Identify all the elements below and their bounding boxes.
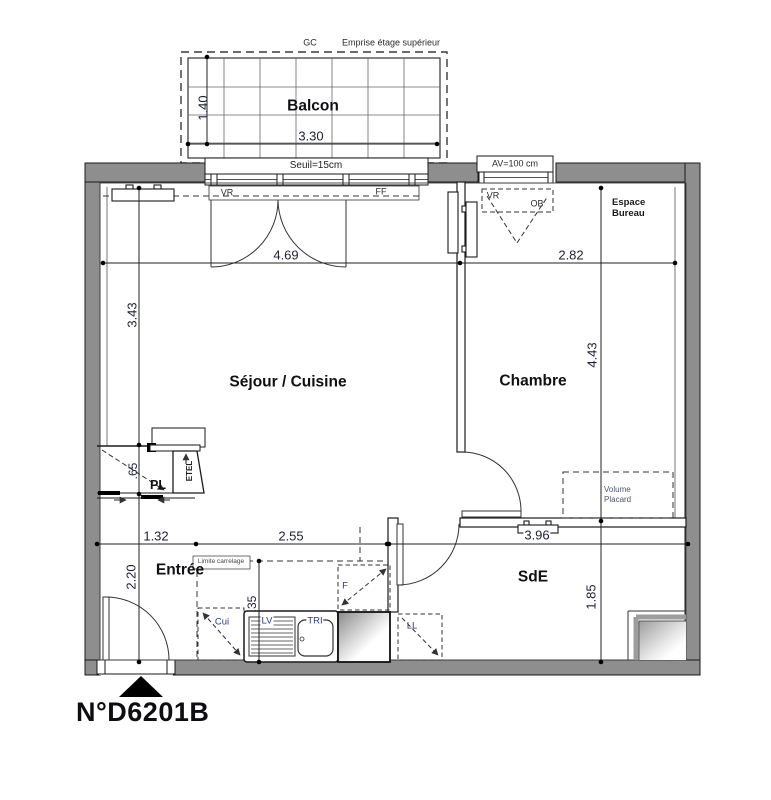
dim-sde-width: 3.96: [523, 529, 550, 542]
etel-label: ETEL: [186, 461, 194, 481]
chambre-shutter-label: VR: [487, 192, 500, 201]
dim-entree-depth: 2.20: [125, 564, 138, 589]
volume-placard-line2: Placard: [604, 495, 631, 505]
plan-number: N°D6201B: [76, 699, 209, 726]
bay-shutter-box: [209, 186, 419, 200]
dim-chambre-width: 2.82: [558, 249, 583, 262]
entrance-opening: [97, 660, 175, 675]
kitchen-sink-unit: [244, 611, 338, 662]
dim-counter-depth: .35: [246, 596, 258, 613]
technical-shaft: [338, 612, 390, 662]
chambre-label: Chambre: [499, 373, 566, 389]
dim-chambre-depth: 4.43: [586, 342, 599, 367]
dim-entree-width: 1.32: [143, 530, 168, 543]
dishwasher-label: LV: [261, 616, 274, 626]
threshold-label: Seuil=15cm: [290, 161, 343, 171]
gc-label: GC: [303, 39, 317, 48]
chambre-window: [479, 172, 553, 183]
volume-placard-line1: Volume: [604, 485, 631, 495]
floor-plan-drawing: [0, 0, 771, 800]
balcony-label: Balcon: [287, 98, 339, 114]
washer-label: LL: [407, 621, 418, 631]
floor-plan-page: GC Emprise étage supérieur Balcon 1.40 3…: [0, 0, 771, 800]
dim-pl-depth: .65: [127, 463, 139, 480]
fridge-label: F: [342, 581, 348, 591]
chambre-tilt-label: OB: [530, 200, 543, 209]
interior-walls: [388, 182, 686, 612]
bay-fixed-label: FF: [376, 188, 387, 197]
entrance-door: [103, 597, 169, 660]
dim-sejour-depth: 3.43: [126, 302, 139, 327]
dim-sejour-width: 4.69: [273, 249, 298, 262]
pl-closet-label: PL: [150, 479, 166, 492]
sde-label: SdE: [518, 569, 548, 585]
dim-balcony-depth: 1.40: [197, 95, 210, 120]
office-line2: Bureau: [612, 208, 645, 219]
bay-shutter-label: VR: [221, 189, 234, 198]
chambre-door: [462, 452, 521, 517]
office-area-label: Espace Bureau: [612, 197, 645, 220]
upper-floor-label: Emprise étage supérieur: [342, 39, 440, 48]
entrance-arrow-icon: [119, 676, 163, 697]
sorting-label: TRI: [306, 616, 323, 626]
stove-label: Cui: [215, 617, 229, 627]
office-line1: Espace: [612, 197, 645, 208]
volume-placard-label: Volume Placard: [604, 485, 631, 505]
sejour-label: Séjour / Cuisine: [229, 374, 346, 390]
sde-door: [397, 524, 459, 585]
dim-kitchen-width: 2.55: [278, 530, 303, 543]
tile-limit-label: Limite carrelage: [198, 559, 244, 566]
entree-label: Entrée: [156, 562, 204, 578]
dim-balcony-width: 3.30: [298, 130, 323, 143]
chambre-window-label: AV=100 cm: [492, 160, 538, 169]
dim-sde-depth: 1.85: [585, 584, 598, 609]
corner-shower: [628, 611, 686, 660]
